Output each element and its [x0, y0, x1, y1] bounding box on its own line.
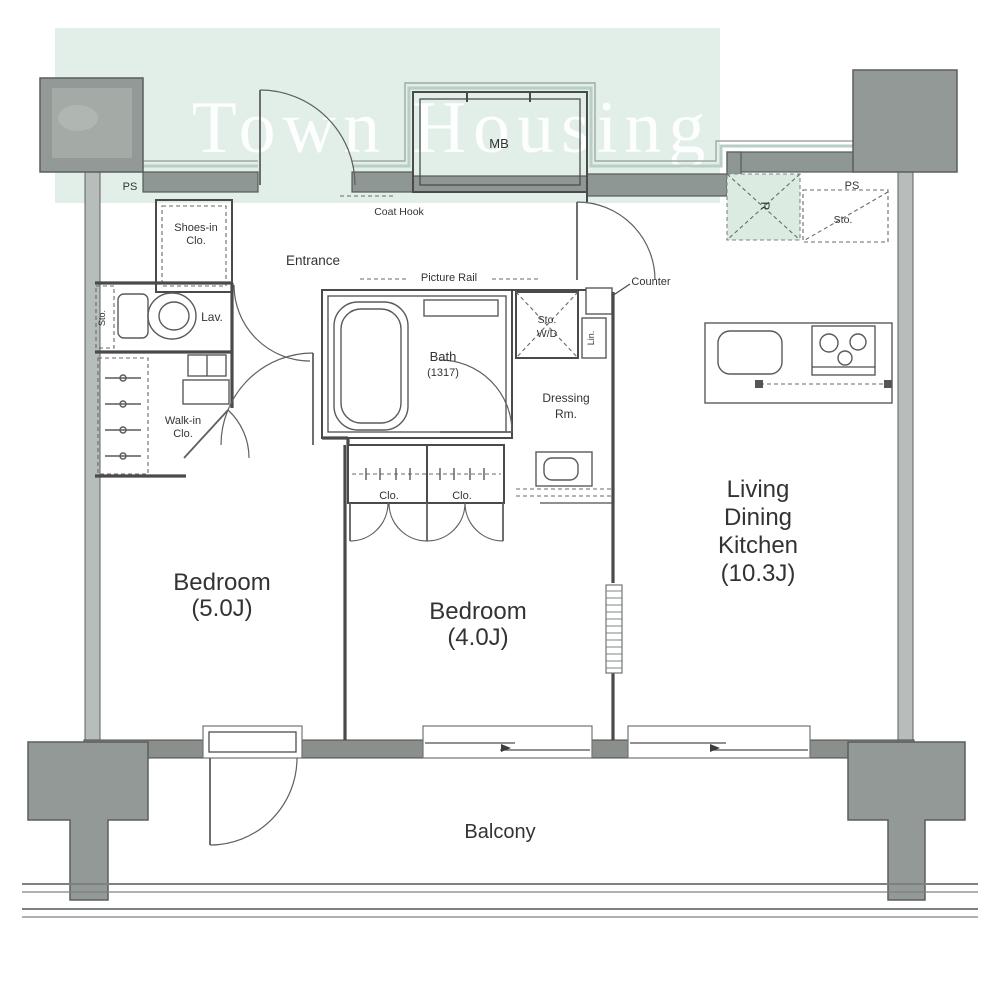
entry-counter	[586, 288, 612, 314]
counter-label: Counter	[631, 276, 670, 288]
kitchen-counter	[705, 323, 892, 403]
entrance-label: Entrance	[286, 253, 340, 268]
pillar-bottom-left	[28, 742, 148, 900]
coat-hook-label: Coat Hook	[374, 206, 424, 218]
floorplan-page: Town Housing	[0, 0, 1000, 1000]
hanger-rail	[105, 375, 141, 459]
dressing-label-1: Dressing	[542, 391, 589, 405]
bath-label-2: (1317)	[427, 367, 459, 379]
ps-left-label: PS	[123, 181, 138, 193]
top-wall-segment	[587, 174, 727, 196]
walkin-label-2: Clo.	[173, 428, 193, 440]
sto-top-right-label: Sto.	[834, 214, 853, 226]
top-wall-segment	[727, 152, 853, 172]
ldk-window	[628, 726, 810, 758]
vanity	[516, 452, 612, 503]
bedroom1-label-2: (5.0J)	[191, 595, 252, 622]
shoes-closet-label-2: Clo.	[186, 235, 206, 247]
lav-label: Lav.	[201, 310, 223, 324]
closet-left-label: Clo.	[379, 490, 399, 502]
ldk-label-2: Dining	[724, 504, 792, 531]
bottom-wall	[300, 740, 425, 758]
bedroom2-label-2: (4.0J)	[447, 624, 508, 651]
balcony-railing	[22, 884, 978, 917]
bedroom2-window	[423, 726, 592, 758]
bedroom1-label-1: Bedroom	[173, 569, 270, 596]
closet-right-label: Clo.	[452, 490, 472, 502]
sto-lav-label: Sto.	[97, 310, 107, 326]
balcony-label: Balcony	[464, 821, 535, 843]
top-wall-segment	[413, 176, 587, 192]
top-wall-segment	[143, 172, 258, 192]
bedroom-closets	[348, 445, 504, 541]
ldk-label-1: Living	[727, 476, 790, 503]
pillar-top-left	[40, 78, 143, 172]
right-exterior-wall	[898, 170, 913, 742]
pillar-bottom-right	[848, 742, 965, 900]
shoes-closet-label-1: Shoes-in	[174, 222, 217, 234]
picture-rail-label: Picture Rail	[421, 272, 477, 284]
bath-room	[322, 290, 512, 438]
sliding-door-hatch	[606, 585, 622, 673]
toilet	[118, 293, 196, 339]
bath-label-1: Bath	[430, 349, 457, 364]
pillar-top-right	[853, 70, 957, 172]
kitchen-sink	[718, 331, 782, 374]
ldk-label-3: Kitchen	[718, 532, 798, 559]
ps-right-label: PS	[845, 180, 860, 192]
walkin-label-1: Walk-in	[165, 415, 201, 427]
sto-wd-label-2: W/D	[537, 328, 558, 340]
ldk-label-4: (10.3J)	[721, 560, 796, 587]
mb-label: MB	[489, 136, 509, 151]
floor-plan-drawing: Town Housing	[0, 0, 1000, 1000]
linen-label: Lin.	[586, 331, 596, 346]
balcony-door-window	[203, 726, 302, 845]
bedroom2-label-1: Bedroom	[429, 598, 526, 625]
stove	[812, 326, 875, 375]
bottom-wall	[590, 740, 630, 758]
fridge-label: R	[758, 202, 772, 211]
sto-wd-label-1: Sto.	[538, 314, 557, 326]
dressing-label-2: Rm.	[555, 407, 577, 421]
bathtub	[334, 302, 408, 430]
top-wall-segment	[352, 172, 413, 192]
